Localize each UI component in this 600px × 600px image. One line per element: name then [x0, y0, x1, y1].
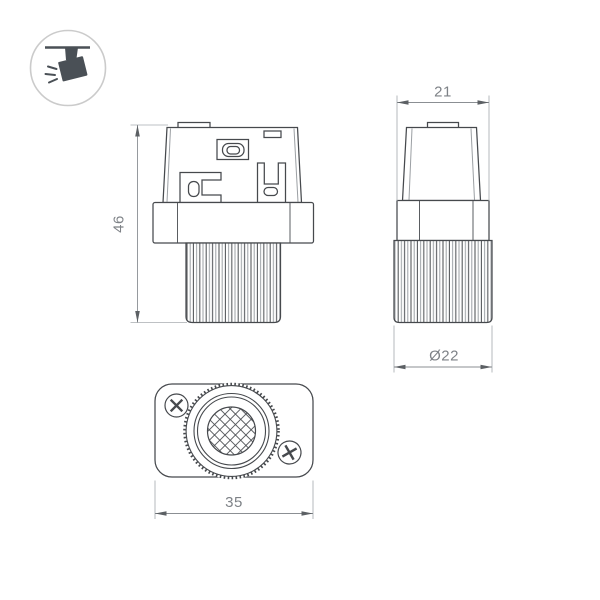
side-view	[394, 123, 492, 323]
front-view	[153, 123, 314, 323]
bottom-lens-mesh	[208, 407, 256, 455]
front-top-tab	[178, 123, 210, 128]
arrow-right	[302, 511, 314, 515]
arrow-right	[478, 100, 490, 104]
front-switch-knob	[227, 147, 240, 155]
arrow-up	[135, 125, 140, 137]
dimension-diameter-label: Ø22	[429, 348, 459, 365]
drawing-svg: 46 21 Ø22	[0, 0, 600, 600]
front-contact-right-slot	[264, 188, 278, 196]
arrow-right	[481, 365, 493, 369]
arrow-left	[394, 365, 406, 369]
dimension-height-label: 46	[111, 215, 128, 233]
technical-drawing-canvas: 46 21 Ø22	[0, 0, 600, 600]
track-spotlight-icon	[31, 31, 106, 106]
side-top-tab	[428, 123, 459, 128]
front-label-slot	[264, 131, 281, 138]
dimension-length: 35	[155, 481, 313, 520]
side-body	[403, 128, 481, 201]
screw-top-left	[165, 394, 188, 417]
side-flange	[397, 201, 489, 241]
dimension-top-width-label: 21	[434, 84, 452, 101]
front-contact-left-slot	[189, 182, 200, 197]
arrow-left	[155, 511, 167, 515]
dimension-length-label: 35	[225, 494, 243, 511]
dimension-diameter: Ø22	[394, 326, 492, 373]
arrow-down	[135, 311, 140, 323]
arrow-left	[397, 100, 409, 104]
icon-light-ray	[46, 74, 56, 75]
side-knurled-barrel	[394, 241, 492, 323]
bottom-view	[155, 383, 313, 479]
front-knurled-barrel	[186, 243, 281, 323]
